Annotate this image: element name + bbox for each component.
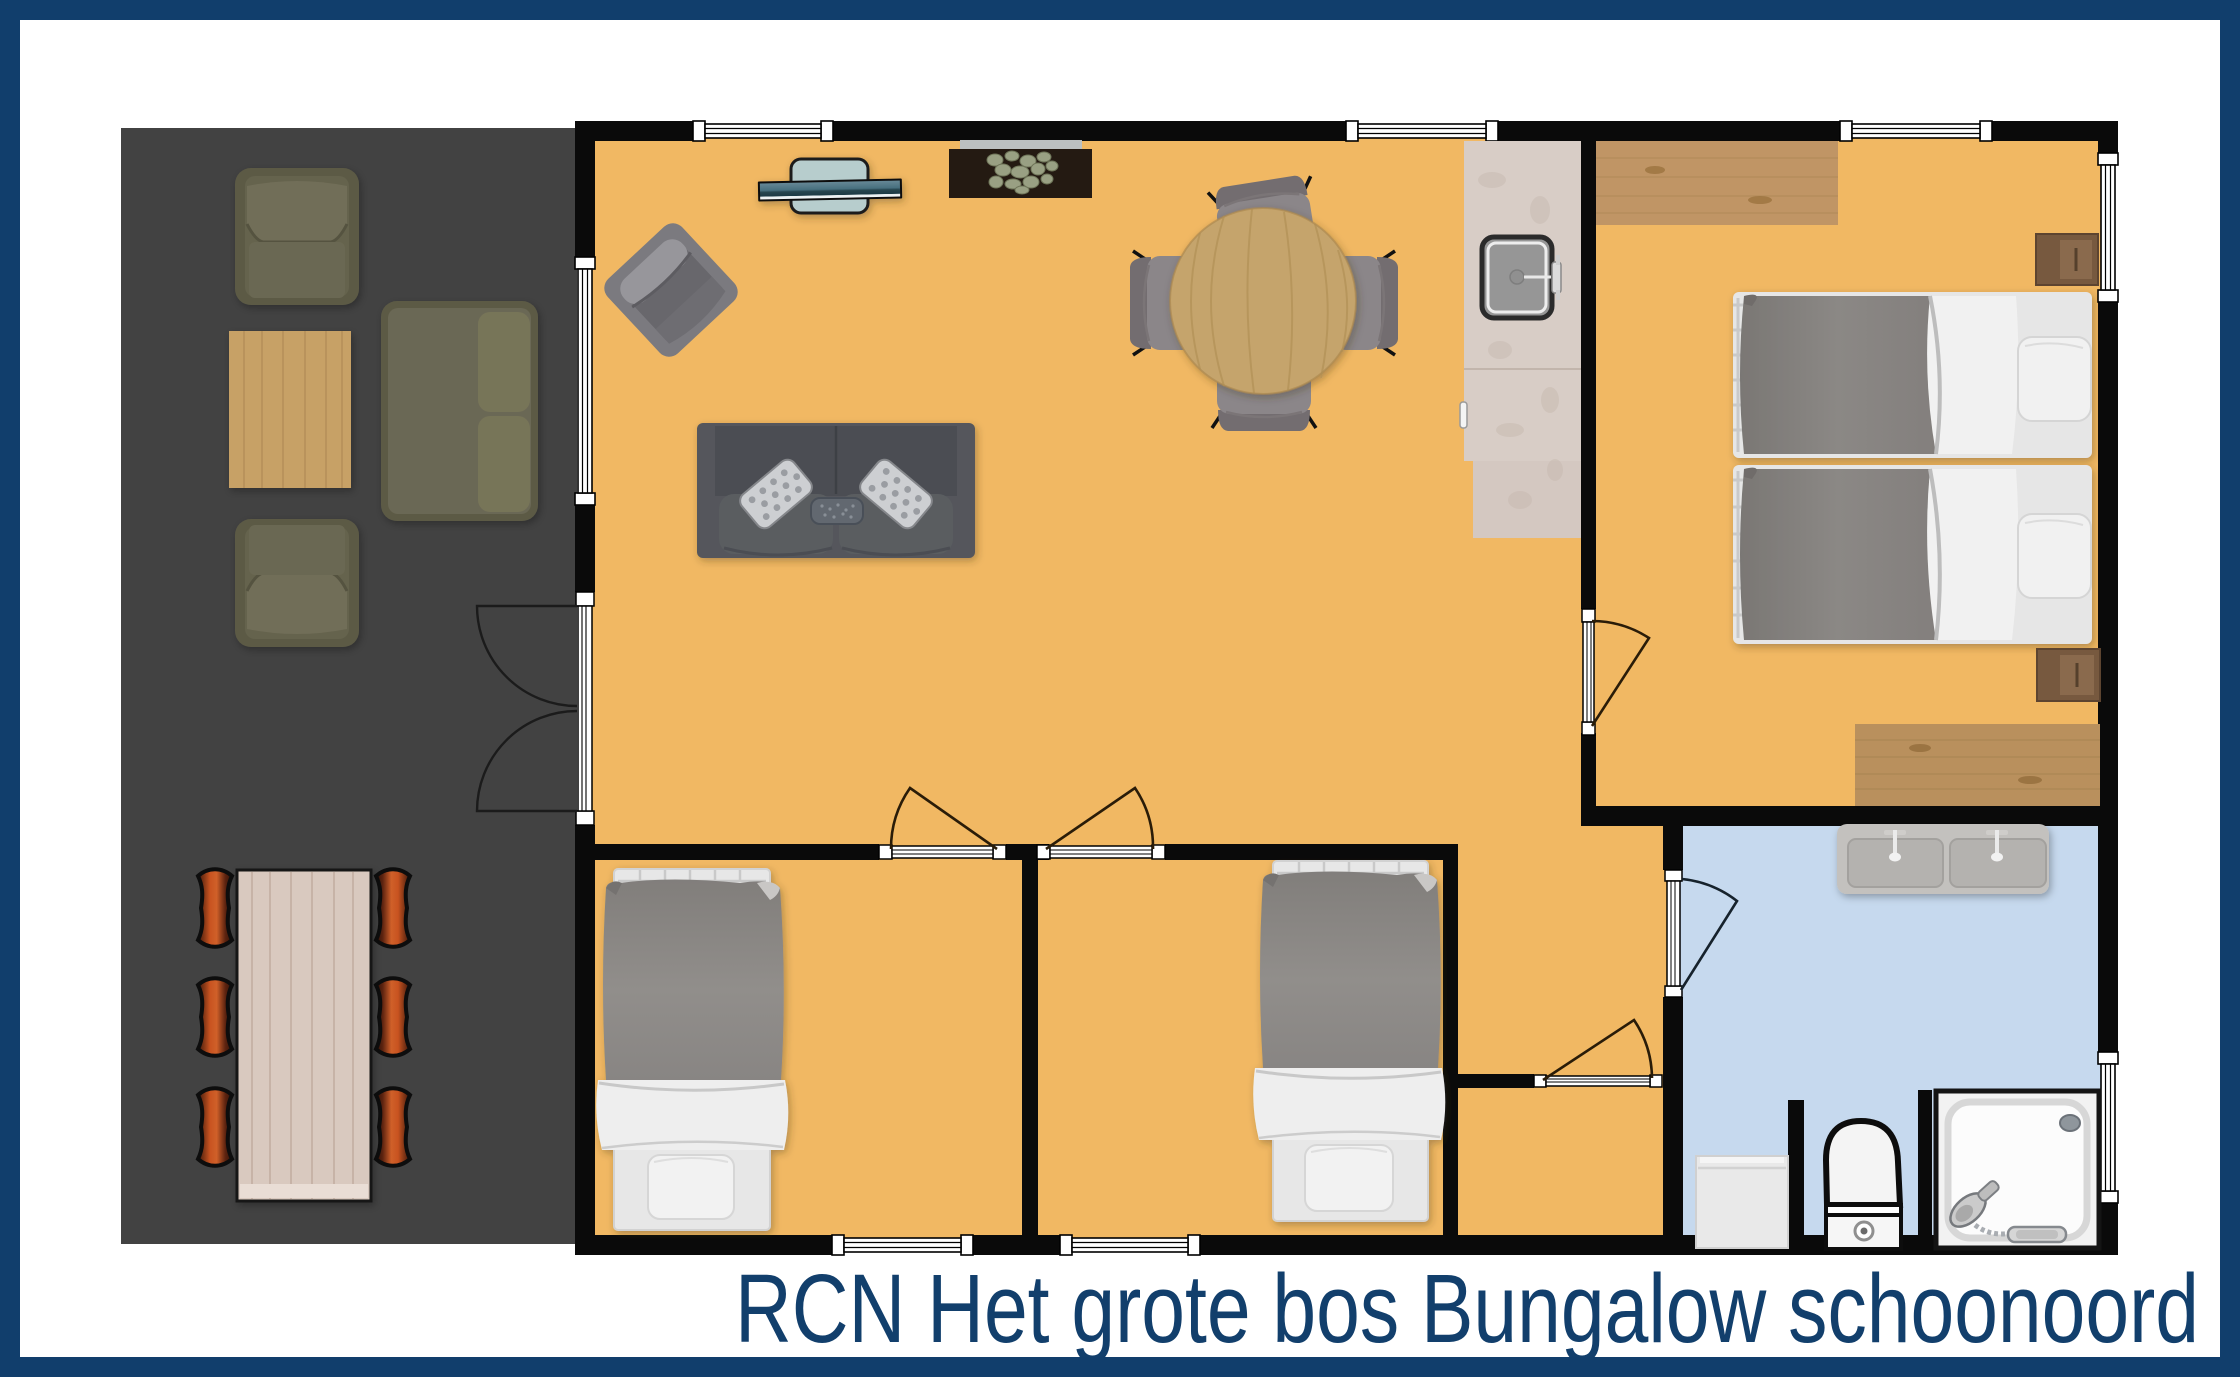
svg-text:RCN Het grote bos Bungalow sch: RCN Het grote bos Bungalow schoonoord	[735, 1254, 2199, 1363]
